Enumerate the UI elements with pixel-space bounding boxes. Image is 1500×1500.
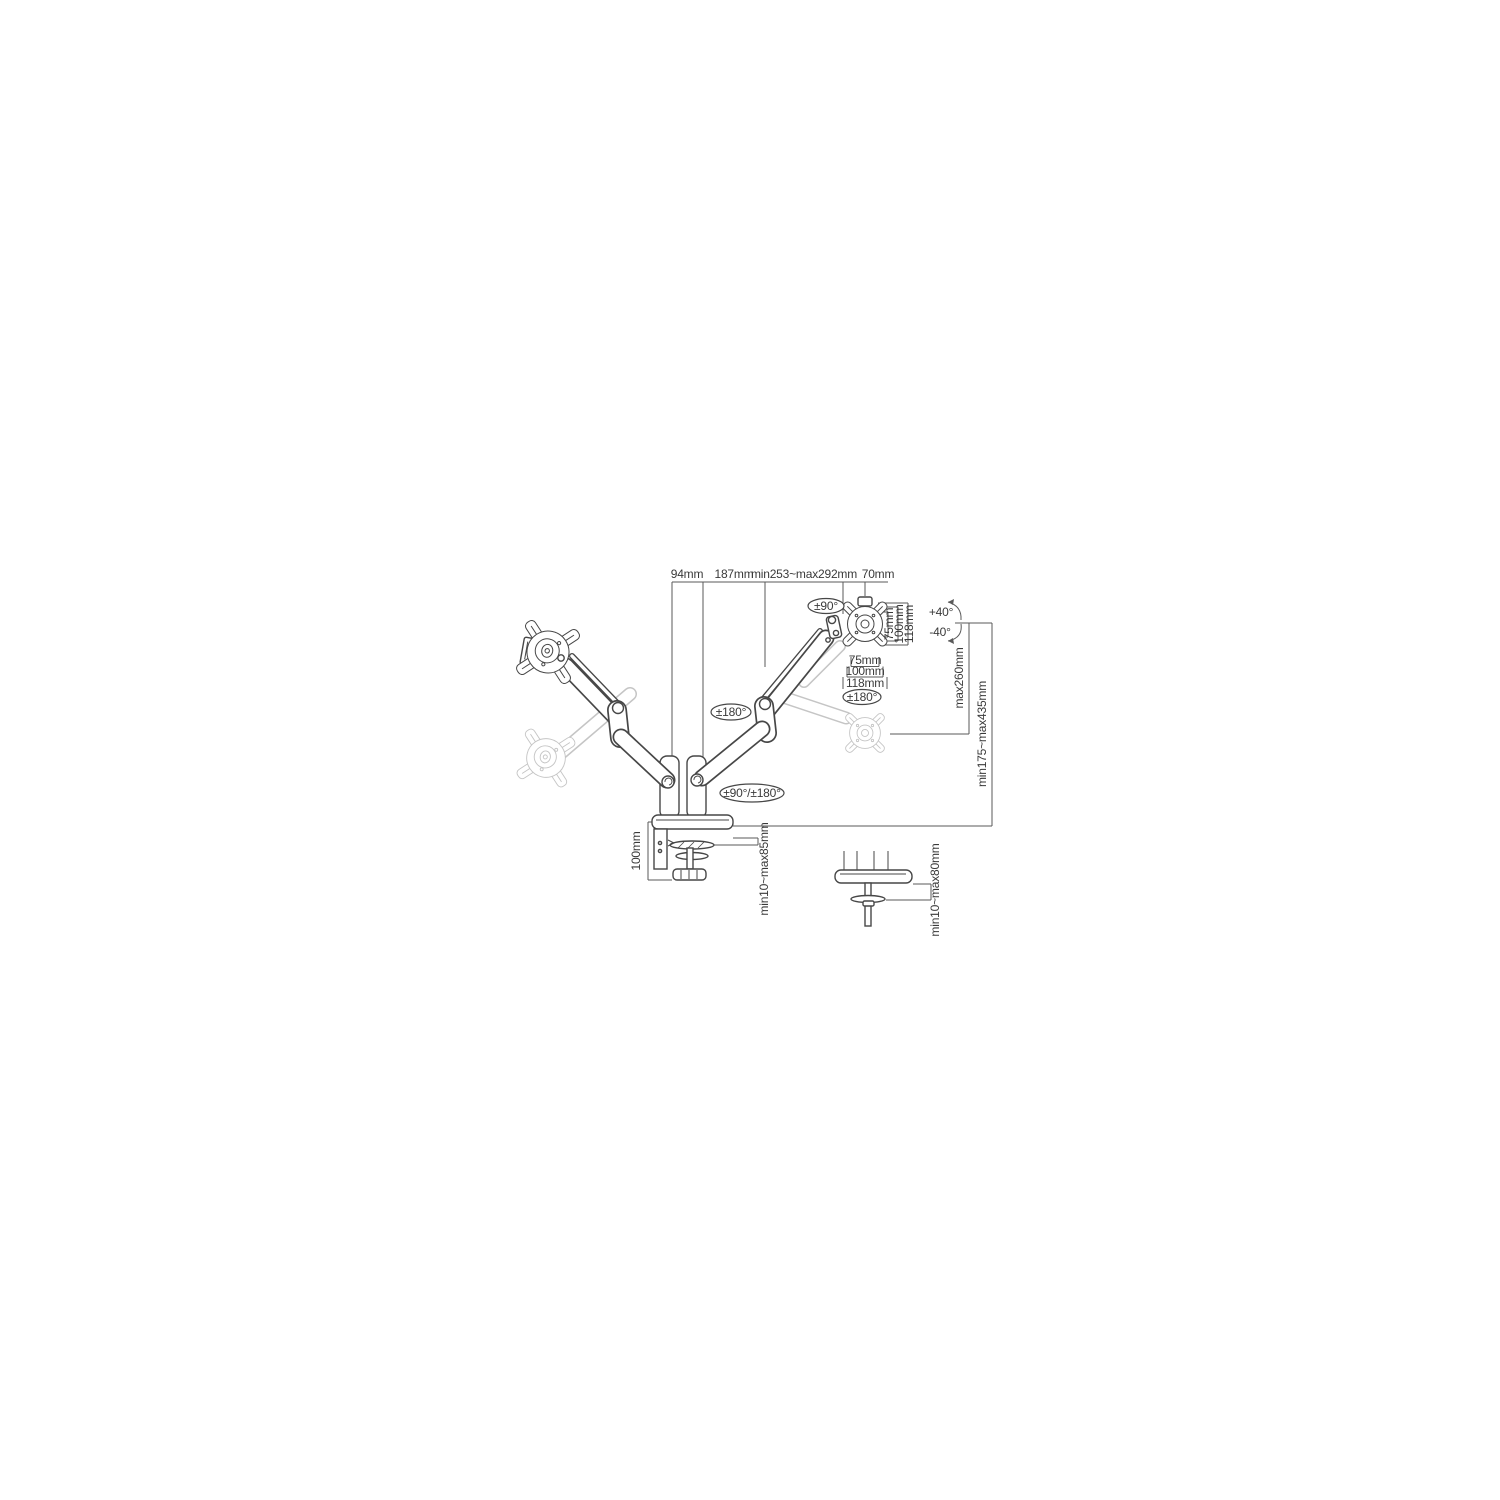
swivel-label: ±90°: [814, 599, 838, 613]
diagram-canvas: 94mm 187mm min253~max292mm 70mm ±90° +40…: [0, 0, 1500, 1500]
desk-clamp: [652, 815, 733, 880]
right-post: [687, 756, 706, 818]
dimension-labels: 94mm 187mm min253~max292mm 70mm ±90° +40…: [629, 567, 989, 937]
clamp-grip-label: min10~max85mm: [757, 822, 771, 915]
clamp-screw: [687, 848, 693, 869]
clamp-top-plate: [652, 815, 733, 829]
height-range-label: min175~max435mm: [975, 681, 989, 787]
top-dim-187mm: 187mm: [714, 567, 753, 581]
right-mount-bracket: [826, 615, 842, 642]
monitor-arm-dimension-diagram: 94mm 187mm min253~max292mm 70mm ±90° +40…: [0, 0, 1500, 1500]
top-dim-min253-max292mm: min253~max292mm: [751, 567, 857, 581]
grommet-plate: [835, 870, 912, 883]
lift-range-label: max260mm: [952, 647, 966, 708]
top-dim-94mm: 94mm: [671, 567, 704, 581]
elbow-rotation-label: ±180°: [716, 705, 747, 719]
vesa-side-118mm: 118mm: [902, 605, 916, 643]
grommet-grip-label: min10~max80mm: [928, 843, 942, 936]
top-dim-70mm: 70mm: [862, 567, 895, 581]
clamp-height-label: 100mm: [629, 831, 643, 870]
grommet-mount: [835, 851, 912, 926]
ghost-right-vesa-plate: [844, 712, 886, 754]
ghost-left-vesa-plate: [514, 726, 578, 790]
tilt-down-label: -40°: [929, 625, 951, 639]
vesa-top-tab: [858, 597, 872, 606]
grommet-nut: [863, 901, 874, 906]
tilt-up-label: +40°: [929, 605, 954, 619]
base-rotation-label: ±90°/±180°: [723, 786, 781, 800]
monitor-rotation-label: ±180°: [847, 690, 878, 704]
vesa-bottom-118mm: 118mm: [846, 676, 884, 690]
